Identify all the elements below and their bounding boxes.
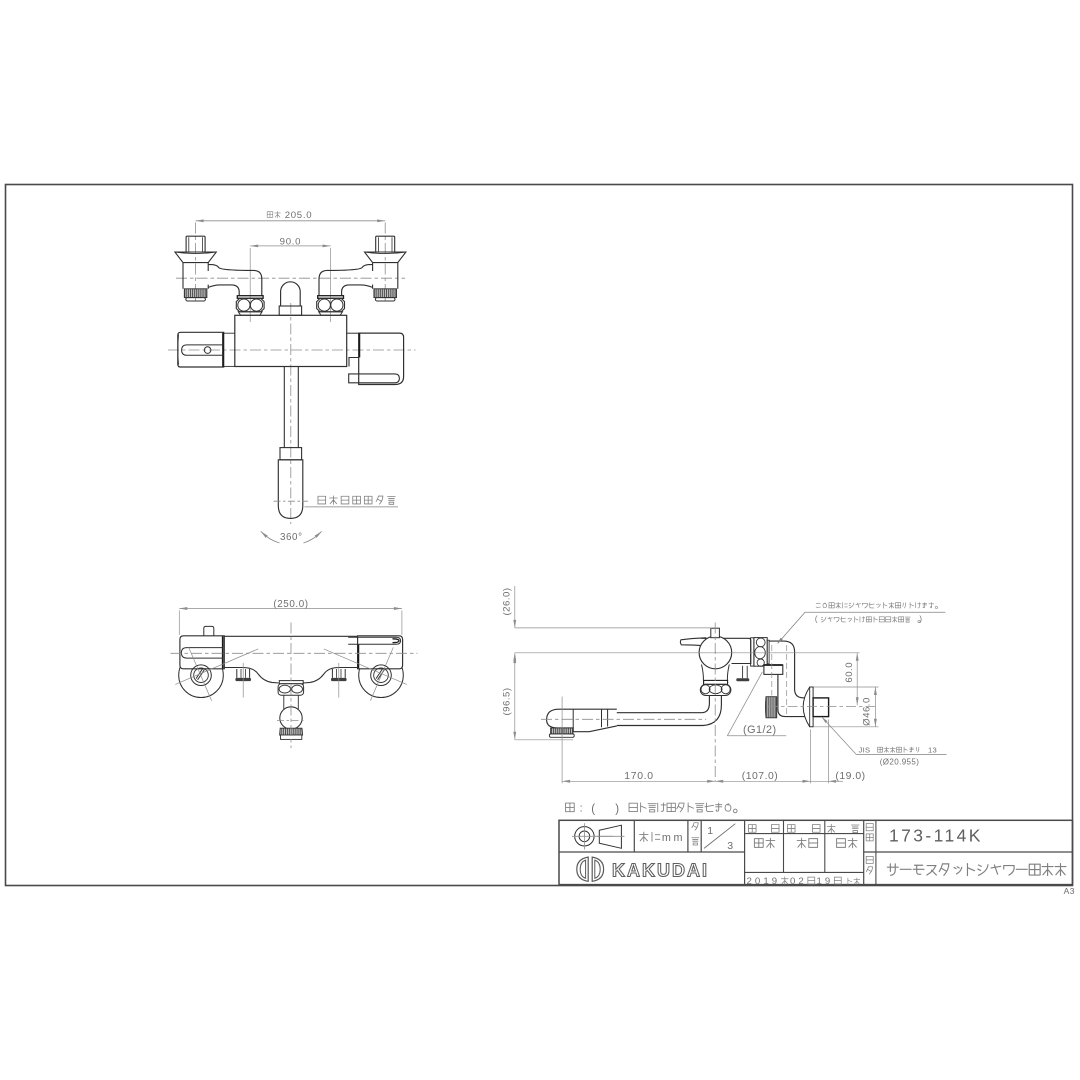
- svg-text:173-114K: 173-114K: [889, 825, 983, 845]
- svg-text:mm: mm: [662, 832, 685, 844]
- svg-text:19: 19: [817, 876, 834, 887]
- svg-text:170.0: 170.0: [624, 771, 654, 782]
- svg-text:(107.0): (107.0): [742, 771, 778, 782]
- svg-text:): ): [919, 615, 922, 624]
- svg-text:Ø46.0: Ø46.0: [861, 697, 872, 726]
- svg-text:(19.0): (19.0): [835, 771, 865, 782]
- svg-text:3: 3: [727, 840, 733, 852]
- svg-text:(G1/2): (G1/2): [743, 724, 777, 736]
- svg-text:1: 1: [707, 825, 713, 837]
- svg-text:(Ø20.955): (Ø20.955): [880, 757, 920, 766]
- svg-text:): ): [615, 804, 619, 816]
- svg-text:(: (: [591, 804, 595, 816]
- svg-text:(26.0): (26.0): [502, 587, 513, 615]
- svg-text:360°: 360°: [280, 532, 303, 543]
- svg-text:JIS: JIS: [859, 745, 871, 754]
- svg-text:(96.5): (96.5): [502, 687, 513, 715]
- svg-text:13: 13: [928, 745, 937, 754]
- svg-text:A3: A3: [1064, 886, 1075, 896]
- svg-text:60.0: 60.0: [844, 662, 855, 683]
- svg-text:205.0: 205.0: [285, 210, 313, 221]
- svg-text:02: 02: [790, 876, 807, 887]
- svg-text:(: (: [815, 615, 818, 624]
- svg-text:KAKUDAI: KAKUDAI: [612, 861, 709, 881]
- svg-text:2019: 2019: [747, 876, 781, 887]
- svg-text::: :: [580, 803, 584, 815]
